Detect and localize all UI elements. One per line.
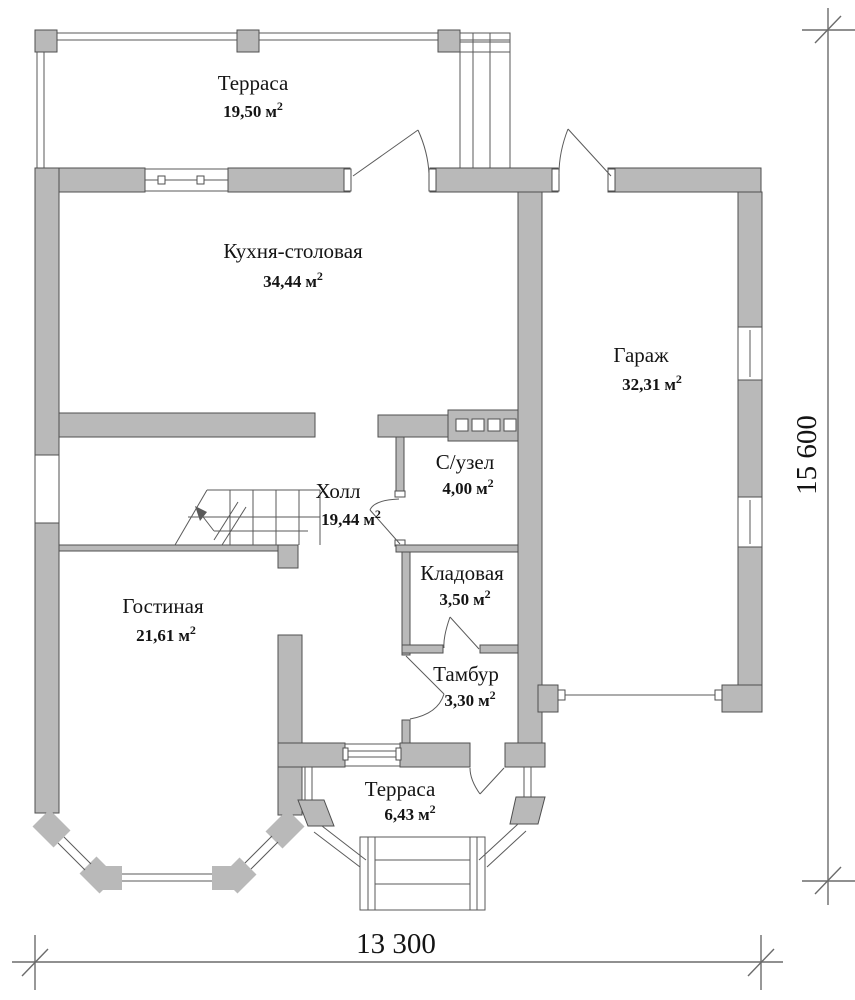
- kitchen-bottom-wall: [59, 413, 315, 437]
- storage-bottom-wall: [480, 645, 518, 653]
- door-swing-arc: [418, 130, 429, 174]
- vent-duct: [472, 419, 484, 431]
- exterior-top-wall: [35, 129, 761, 192]
- wall-segment: [505, 743, 545, 767]
- storage-bottom-wall: [402, 645, 443, 653]
- terrace-steps: [360, 837, 485, 910]
- garage-door-pillar: [538, 685, 558, 712]
- door-jamb: [429, 169, 436, 191]
- living-room-right-wall: [278, 635, 302, 815]
- wall-segment: [278, 743, 345, 767]
- garage-window-lower: [738, 497, 762, 547]
- stair-break-mark: [214, 502, 238, 540]
- door-leaf: [480, 768, 504, 794]
- wall-segment: [400, 743, 470, 767]
- vent-duct: [488, 419, 500, 431]
- terrace-column: [237, 30, 259, 52]
- door-jamb: [552, 169, 559, 191]
- room-area: 19,50м2: [223, 99, 283, 121]
- height-dimension-label: 15 600: [791, 415, 823, 495]
- garage-right-wall: [738, 380, 762, 497]
- label-kitchen: Кухня-столовая 34,44м2: [223, 239, 363, 291]
- window-mullion: [158, 176, 165, 184]
- bathroom: [370, 410, 518, 546]
- door-swing-arc: [410, 694, 444, 719]
- room-area: 4,00м2: [442, 476, 493, 498]
- wall-segment: [228, 168, 350, 192]
- width-dimension-label: 13 300: [356, 928, 436, 960]
- terrace-side-steps: [460, 33, 510, 168]
- entrance-door: [470, 768, 504, 794]
- room-name: Кухня-столовая: [223, 239, 363, 263]
- living-room: [41, 635, 302, 885]
- wall-segment: [608, 168, 761, 192]
- room-area: 3,50м2: [439, 587, 490, 609]
- door-jamb: [608, 169, 615, 191]
- door-jamb: [558, 690, 565, 700]
- kitchen: [59, 413, 315, 437]
- label-living-room: Гостиная 21,61м2: [122, 594, 204, 645]
- window-mullion: [396, 748, 401, 760]
- door-jamb: [344, 169, 351, 191]
- room-area: 32,31м2: [622, 372, 682, 394]
- window-mullion: [197, 176, 204, 184]
- dimension-height: 15 600: [791, 8, 855, 905]
- room-name: С/узел: [436, 450, 494, 474]
- terrace-corner-pillar: [510, 797, 545, 824]
- bay-window-opening: [248, 840, 274, 866]
- label-terrace-top: Терраса 19,50м2: [218, 71, 289, 121]
- room-name: Гараж: [613, 343, 669, 367]
- garage-window-upper: [738, 327, 762, 380]
- door-jamb: [715, 690, 722, 700]
- steps-outline: [460, 33, 510, 168]
- room-area: 3,30м2: [444, 688, 495, 710]
- room-area: 6,43м2: [384, 802, 435, 824]
- door-swing-arc: [470, 768, 480, 794]
- room-area: 34,44м2: [263, 269, 323, 291]
- terrace-corner-pillar: [298, 800, 334, 826]
- hall-living-divider: [59, 545, 278, 551]
- wall-segment: [430, 168, 558, 192]
- upper-terrace: [35, 30, 510, 168]
- room-name: Терраса: [218, 71, 289, 95]
- room-name: Холл: [315, 479, 360, 503]
- garage-left-wall: [518, 192, 542, 767]
- label-storage: Кладовая 3,50м2: [420, 561, 504, 609]
- room-name: Гостиная: [122, 594, 204, 618]
- hall-window: [35, 455, 59, 523]
- vent-duct: [504, 419, 516, 431]
- door-swing-arc: [444, 617, 450, 648]
- terrace-column: [438, 30, 460, 52]
- bathroom-top-wall: [378, 415, 448, 437]
- garage: [518, 192, 762, 767]
- exterior-left-wall: [35, 168, 59, 813]
- floor-plan-drawing: 13 300 15 600 Терраса 19,50м2 Кухня-стол…: [0, 0, 855, 1000]
- garage-right-wall: [738, 192, 762, 327]
- bay-window-opening: [62, 839, 88, 865]
- room-area: 19,44м2: [321, 507, 381, 529]
- staircase: [175, 490, 320, 545]
- storage-door: [444, 617, 479, 649]
- hall: [59, 490, 320, 568]
- arrow-head: [195, 506, 207, 521]
- room-area: 21,61м2: [136, 623, 196, 645]
- room-name: Тамбур: [433, 662, 499, 686]
- label-hall: Холл 19,44м2: [315, 479, 380, 529]
- dimension-width: 13 300: [12, 928, 783, 990]
- kitchen-terrace-door: [344, 130, 436, 191]
- wall-pillar: [278, 545, 298, 568]
- room-name: Кладовая: [420, 561, 504, 585]
- label-bathroom: С/узел 4,00м2: [436, 450, 494, 498]
- bathroom-partition: [396, 437, 404, 497]
- door-swing-arc: [559, 129, 568, 174]
- storage-left-wall: [402, 552, 410, 655]
- vestibule-left-wall: [402, 720, 410, 743]
- terrace-column: [35, 30, 57, 52]
- garage-door-pillar: [722, 685, 762, 712]
- door-leaf: [353, 130, 418, 176]
- room-name: Терраса: [365, 777, 436, 801]
- terrace-railing-line: [487, 831, 526, 867]
- wall-segment: [35, 168, 59, 455]
- window-mullion: [343, 748, 348, 760]
- label-garage: Гараж 32,31м2: [613, 343, 682, 394]
- garage-door: [558, 690, 722, 700]
- kitchen-window: [145, 169, 228, 191]
- door-jamb: [395, 491, 405, 497]
- stair-break-mark: [222, 507, 246, 545]
- stair-direction-arrow: [195, 506, 308, 531]
- garage-rear-door: [552, 129, 615, 191]
- corridor-window: [343, 744, 401, 766]
- door-leaf: [450, 617, 479, 649]
- vent-duct: [456, 419, 468, 431]
- door-leaf: [568, 129, 611, 176]
- garage-right-wall: [738, 547, 762, 685]
- wall-segment: [35, 523, 59, 813]
- steps-outline: [360, 837, 485, 910]
- label-terrace-bottom: Терраса 6,43м2: [365, 777, 436, 824]
- floor-plan-page: 13 300 15 600 Терраса 19,50м2 Кухня-стол…: [0, 0, 855, 1000]
- label-vestibule: Тамбур 3,30м2: [433, 662, 499, 710]
